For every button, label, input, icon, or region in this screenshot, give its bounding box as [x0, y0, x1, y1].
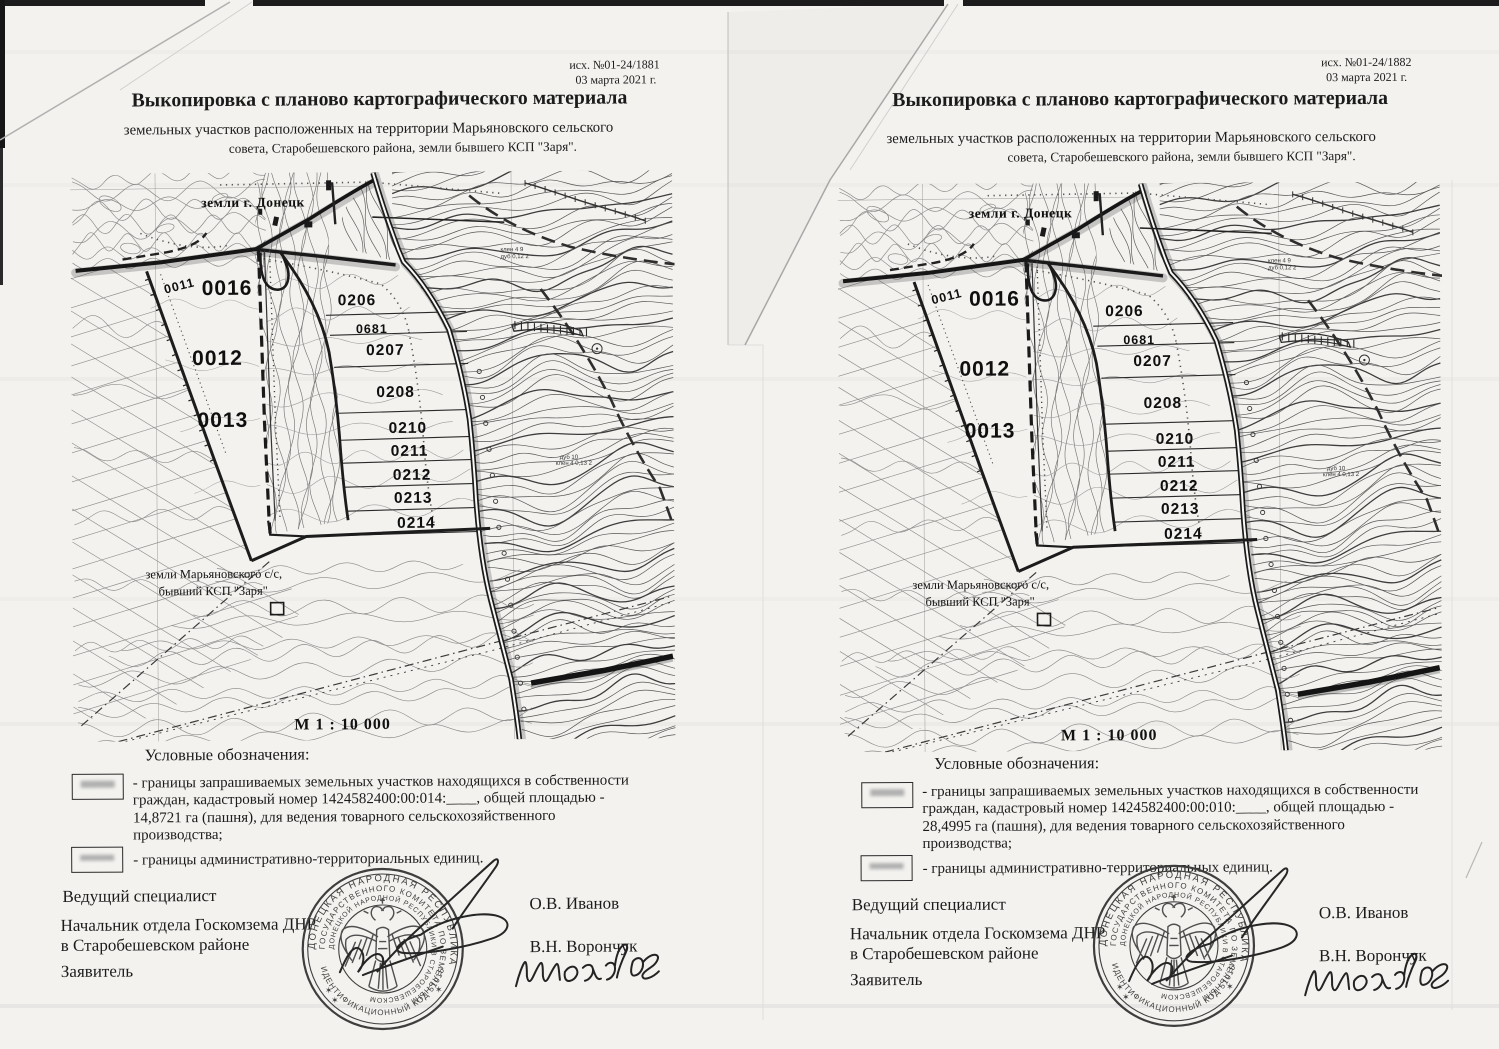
svg-text:0211: 0211 — [1158, 454, 1196, 471]
svg-text:0016: 0016 — [969, 288, 1020, 311]
svg-text:0214: 0214 — [1164, 526, 1203, 543]
svg-text:клен 4 9: клен 4 9 — [1268, 258, 1292, 264]
svg-text:клен 4 0,13 2: клен 4 0,13 2 — [1323, 472, 1360, 478]
svg-text:0013: 0013 — [965, 420, 1016, 443]
svg-text:0011: 0011 — [930, 286, 964, 307]
svg-text:0213: 0213 — [1161, 501, 1200, 518]
svg-text:0207: 0207 — [1133, 353, 1172, 370]
svg-text:0212: 0212 — [1160, 478, 1199, 495]
svg-text:дуб 0,12 2: дуб 0,12 2 — [1268, 265, 1297, 271]
svg-text:земли Марьяновского с/с,: земли Марьяновского с/с, — [912, 577, 1049, 592]
svg-text:М 1 : 10 000: М 1 : 10 000 — [1061, 727, 1158, 744]
svg-text:0206: 0206 — [1105, 303, 1144, 320]
svg-text:земли г. Донецк: земли г. Донецк — [969, 205, 1073, 220]
svg-text:0681: 0681 — [1123, 333, 1155, 347]
svg-text:0210: 0210 — [1156, 431, 1195, 448]
svg-text:0012: 0012 — [959, 358, 1010, 381]
svg-text:бывший КСП "Заря": бывший КСП "Заря" — [925, 594, 1034, 608]
svg-text:0208: 0208 — [1144, 395, 1183, 412]
